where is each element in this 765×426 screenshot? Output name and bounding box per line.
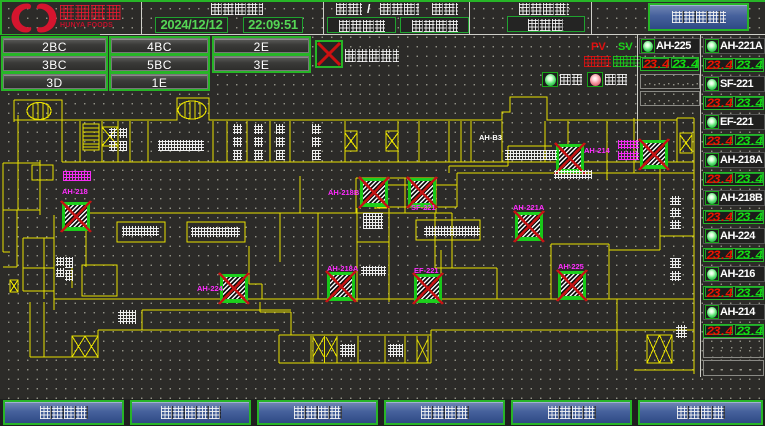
- svg-text:AH-221A: AH-221A: [513, 203, 545, 212]
- svg-text:AH-218: AH-218: [62, 187, 88, 196]
- svg-text:AH-214: AH-214: [584, 146, 611, 155]
- svg-text:SF-221: SF-221: [411, 203, 436, 212]
- svg-text:AH-224: AH-224: [197, 284, 224, 293]
- svg-text:AH-218A: AH-218A: [327, 264, 359, 273]
- svg-text:EF-221: EF-221: [414, 266, 439, 275]
- svg-text:AH-225: AH-225: [558, 262, 584, 271]
- svg-text:AH-B3: AH-B3: [479, 133, 502, 142]
- svg-text:AH-218B: AH-218B: [328, 188, 360, 197]
